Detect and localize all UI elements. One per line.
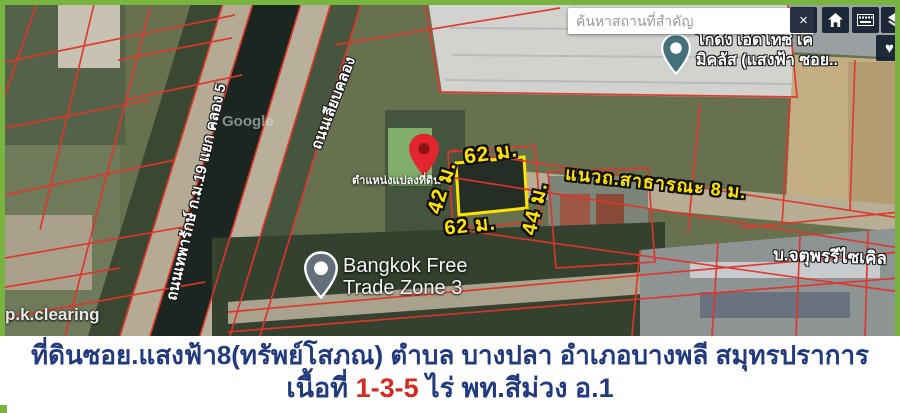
caption-area-value: 1-3-5 <box>356 373 419 403</box>
layers-icon <box>887 12 896 28</box>
caption-line2: เนื้อที่ 1-3-5 ไร่ พท.สีม่วง อ.1 <box>0 371 900 405</box>
keyboard-icon <box>857 14 874 26</box>
caption-area-suffix: ไร่ พท.สีม่วง อ.1 <box>419 373 614 403</box>
close-button[interactable]: × <box>790 7 817 33</box>
warehouse-label[interactable]: โกดัง เอ็ดโทซี เค มิคลัส (แสงฟ้า ซอย.. <box>696 31 886 71</box>
recycle-label: บ.จตุพรรีไซเคิล <box>755 240 895 272</box>
warehouse-label-line1: โกดัง เอ็ดโทซี เค <box>696 31 886 51</box>
favorite-button[interactable]: ♥ <box>876 35 895 61</box>
search-input[interactable] <box>568 8 814 34</box>
clearing-label: p.k.clearing <box>5 305 99 325</box>
trade-zone-label-line2: Trade Zone 3 <box>343 277 468 299</box>
close-icon: × <box>799 12 808 29</box>
caption-line1: ที่ดินซอย.แสงฟ้า8(ทรัพย์โสภณ) ตำบล บางปล… <box>0 339 900 371</box>
google-watermark: Google <box>222 113 274 130</box>
trade-zone-pin-icon[interactable] <box>303 251 339 304</box>
heart-icon: ♥ <box>885 40 894 57</box>
frame-corner <box>0 405 7 413</box>
home-icon <box>828 13 843 27</box>
home-button[interactable] <box>822 7 849 33</box>
trade-zone-label-line1: Bangkok Free <box>343 255 468 277</box>
trade-zone-label[interactable]: Bangkok Free Trade Zone 3 <box>343 255 468 299</box>
satellite-map[interactable]: Google ถนนเทพารักษ์ ก.ม.19 แยก คลอง 5 ถน… <box>5 5 895 336</box>
caption-area-prefix: เนื้อที่ <box>286 373 355 403</box>
warehouse-pin-icon[interactable] <box>660 33 692 80</box>
keyboard-button[interactable] <box>852 7 879 33</box>
warehouse-label-line2: มิคลัส (แสงฟ้า ซอย.. <box>696 51 886 71</box>
layers-button[interactable] <box>881 7 895 33</box>
caption-panel: ที่ดินซอย.แสงฟ้า8(ทรัพย์โสภณ) ตำบล บางปล… <box>0 336 900 413</box>
